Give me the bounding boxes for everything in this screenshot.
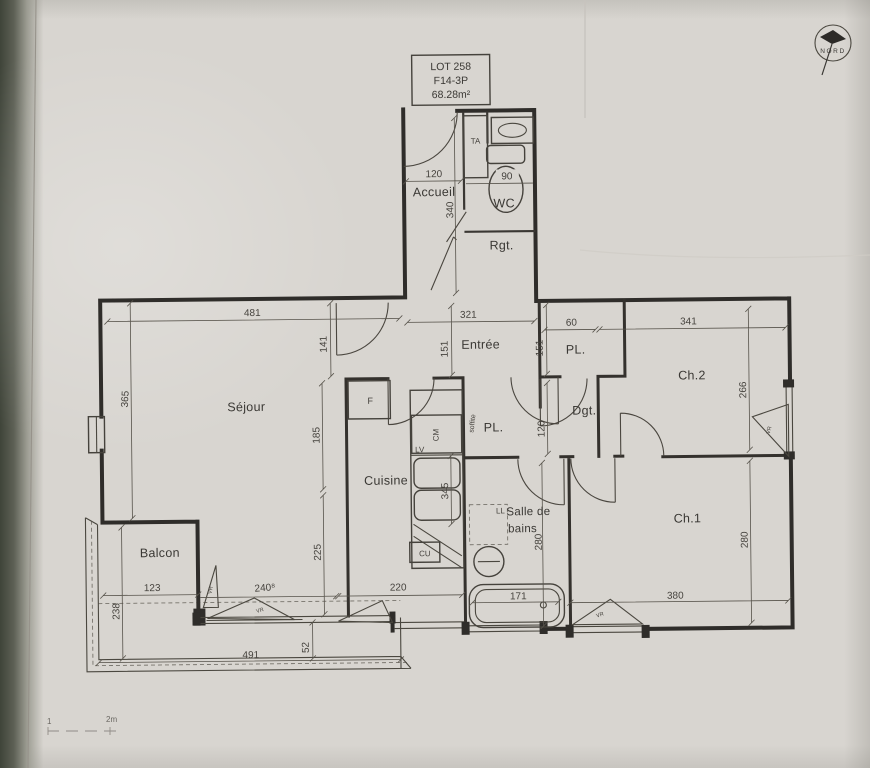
wc-sink [491, 117, 533, 143]
label-vr-bay: VR [256, 607, 265, 615]
dim-238-balcon: 238 [111, 603, 122, 620]
dim-481-sejour: 481 [244, 308, 261, 319]
room-label-sejour: Séjour [227, 400, 265, 414]
room-label-accueil: Accueil [413, 185, 456, 199]
dim-280-ch1: 280 [740, 531, 751, 548]
room-label-sdb-1: Salle de [506, 506, 550, 518]
dim-185: 185 [311, 427, 322, 444]
dim-280-sdb: 280 [534, 533, 545, 550]
floorplan-drawing: 120 90 340 481 141 321 151 151 60 341 36… [0, 0, 870, 768]
label-ta: TA [471, 137, 481, 146]
title-type: F14-3P [434, 75, 469, 87]
label-lv: LV [415, 445, 425, 454]
room-labels: Accueil WC Rgt. Entrée PL. PL. Dgt. Ch.2… [136, 182, 708, 560]
dim-123-balcon: 123 [144, 583, 161, 594]
title-area: 68.28m² [432, 89, 471, 101]
room-label-ch1: Ch.1 [674, 511, 702, 525]
label-fridge: F [367, 396, 373, 406]
label-vr-left: VR [208, 586, 215, 595]
dim-345-kitchen: 345 [440, 482, 451, 499]
dim-151-right: 151 [535, 339, 546, 356]
room-label-sdb-2: bains [508, 523, 537, 535]
room-label-wc: WC [493, 196, 515, 210]
dim-120-entry: 120 [425, 169, 442, 180]
room-label-pl-hall: PL. [566, 343, 586, 357]
room-label-balcon: Balcon [140, 546, 180, 560]
title-block: LOT 258 F14-3P 68.28m² [412, 55, 491, 106]
dim-240-bay: 240⁸ [254, 582, 276, 595]
dim-321-entree: 321 [460, 310, 477, 321]
dim-60-pl: 60 [566, 318, 578, 329]
dim-90-wc: 90 [501, 171, 513, 182]
kitchen-sink-2 [414, 490, 460, 520]
dimension-labels: 120 90 340 481 141 321 151 151 60 341 36… [107, 166, 752, 663]
scanned-floorplan-photo: 120 90 340 481 141 321 151 151 60 341 36… [0, 0, 870, 768]
label-ll: LL [496, 506, 506, 515]
label-vr-ch1: VR [596, 611, 605, 619]
scale-bar: 1 2m [47, 715, 117, 735]
dim-151-left: 151 [440, 340, 451, 357]
dim-341-ch2: 341 [680, 316, 697, 327]
north-label: NORD [820, 48, 846, 55]
room-label-ch2: Ch.2 [678, 368, 706, 382]
label-cu: CU [419, 549, 431, 558]
room-label-dgt: Dgt. [572, 403, 596, 417]
dim-491-balcon: 491 [242, 650, 259, 661]
title-lot: LOT 258 [430, 61, 471, 73]
dim-141: 141 [319, 335, 330, 352]
dim-220-cuisine: 220 [390, 582, 407, 593]
balcony-outline [85, 514, 411, 671]
vr-triangle-bay2 [338, 601, 392, 624]
room-label-entree: Entrée [461, 337, 500, 351]
dim-225: 225 [313, 543, 324, 560]
room-label-cuisine: Cuisine [364, 473, 408, 487]
kitchen-sink-1 [414, 458, 460, 488]
dim-266-ch2: 266 [738, 381, 749, 398]
technical-shaft [463, 116, 488, 178]
north-arrow-icon: NORD [815, 25, 851, 75]
dim-171-bathtub: 171 [510, 591, 527, 602]
label-cm: CM [432, 428, 441, 441]
scale-end: 2m [106, 715, 117, 724]
dim-52-balcon: 52 [301, 641, 312, 653]
dim-365-sejour: 365 [120, 390, 132, 408]
toilet-tank [487, 145, 525, 163]
label-vr-ch2: VR [766, 426, 774, 435]
dim-340-hall: 340 [445, 201, 456, 218]
room-label-rgt: Rgt. [489, 238, 513, 252]
label-soffite: soffite [468, 414, 477, 433]
dim-120-dgt: 120 [536, 420, 547, 437]
dim-380-ch1: 380 [667, 591, 684, 602]
room-label-pl-kitchen: PL. [484, 420, 504, 434]
scale-start: 1 [47, 717, 52, 726]
doors [334, 110, 664, 507]
